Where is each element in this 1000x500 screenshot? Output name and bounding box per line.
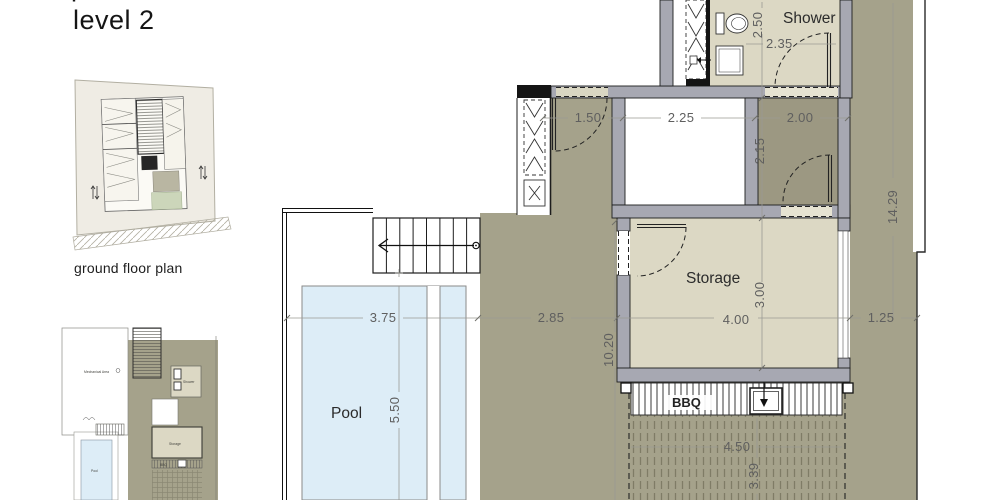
mini-void-room <box>152 399 178 425</box>
dim-deck-width: 2.85 <box>538 310 565 325</box>
storage-window <box>838 231 848 358</box>
wall-black-segment <box>517 85 551 98</box>
dim-storage-width: 4.00 <box>723 312 750 327</box>
duct-icon <box>686 0 706 79</box>
pergola-area: BBQ <box>621 370 853 500</box>
main-plan: BBQ <box>282 0 925 500</box>
site-boundary <box>917 0 925 500</box>
dim-storage-depth: 3.00 <box>752 282 767 309</box>
pergola-post <box>621 383 631 393</box>
dim-opening-left: 1.50 <box>575 110 602 125</box>
mini-shower-label: Shower <box>183 380 195 384</box>
toilet-icon <box>716 13 748 34</box>
mini-pergola <box>152 470 202 500</box>
mini-mechanical-label: Mechanical Area <box>84 370 109 374</box>
page-title-text: level 2 <box>73 5 155 35</box>
pergola-post <box>843 383 853 393</box>
mini-pool-label: Pool <box>91 469 98 473</box>
mini-mechanical-terrace <box>62 328 128 435</box>
dim-pergola-depth: 3.39 <box>746 463 761 490</box>
dim-pergola-width: 4.50 <box>724 439 751 454</box>
dim-corridor-width: 2.00 <box>787 110 814 125</box>
ground-floor-thumbnail: ground floor plan <box>73 80 231 276</box>
duct-icon <box>524 100 545 175</box>
mini-grill <box>178 460 186 467</box>
shower-label: Shower <box>783 10 836 27</box>
thumb-building <box>101 97 187 212</box>
mini-bbq-label: BBQ <box>160 463 168 467</box>
dim-right-margin: 1.25 <box>868 310 895 325</box>
dim-pool-length: 5.50 <box>387 397 402 424</box>
mini-pool-stairs <box>96 424 124 435</box>
bbq-counter <box>631 383 842 415</box>
storage-label: Storage <box>686 270 740 287</box>
dim-pool-width: 3.75 <box>370 310 397 325</box>
stairs <box>373 218 480 273</box>
page-title: p level 2 <box>71 0 155 35</box>
dim-shower-width: 2.50 <box>750 12 765 39</box>
page-title-partial: p <box>71 0 87 2</box>
pool-label: Pool <box>331 405 362 422</box>
mini-storage-label: Storage <box>169 442 181 446</box>
dim-terrace-length: 10.20 <box>601 333 616 367</box>
dim-corridor-depth: 2.15 <box>752 138 767 165</box>
floor-plan-sheet: p level 2 ground floor plan <box>0 0 1000 500</box>
shaft-shower <box>686 0 710 86</box>
level2-thumbnail: Mechanical Area Shower Storage Pool BBQ <box>62 328 218 500</box>
mini-stair-core <box>133 328 161 378</box>
ground-floor-caption: ground floor plan <box>74 260 182 276</box>
dim-site-height: 14.29 <box>885 190 900 224</box>
storage-room <box>630 218 838 368</box>
dim-shower-depth: 2.35 <box>766 36 793 51</box>
plan-canvas: p level 2 ground floor plan <box>0 0 1000 500</box>
bbq-label: BBQ <box>672 395 701 410</box>
dim-void-width: 2.25 <box>668 110 695 125</box>
